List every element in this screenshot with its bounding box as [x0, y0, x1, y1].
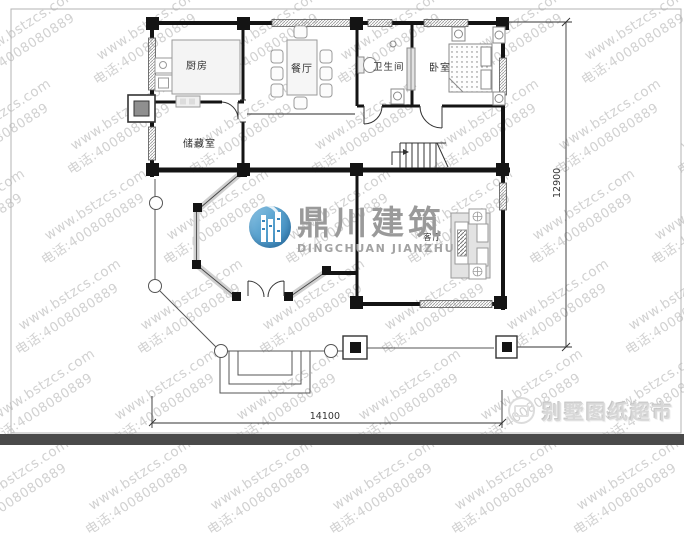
- footer-brand: 别墅图纸超市: [508, 396, 674, 425]
- flue-block: [128, 95, 155, 122]
- watermark-text: www.bstzcs.com电话:4008080889: [207, 435, 328, 532]
- room-label-dining: 餐厅: [291, 60, 313, 75]
- watermark-text: www.bstzcs.com电话:4008080889: [0, 435, 84, 532]
- footer-brand-label: 别墅图纸超市: [542, 396, 674, 425]
- room-label-bedroom: 卧室: [429, 59, 451, 74]
- room-label-bathroom: 卫生间: [373, 59, 405, 73]
- drawing-sheet: www.bstzcs.com电话:4008080889www.bstzcs.co…: [0, 0, 684, 445]
- dimension-bottom-label: 14100: [310, 411, 340, 422]
- footer-brand-icon: [508, 397, 535, 424]
- dingchuan-logo-title: 鼎川建筑: [297, 206, 455, 241]
- staircase: [392, 143, 448, 168]
- watermark-text: www.bstzcs.com电话:4008080889: [329, 435, 450, 532]
- kitchen-counter: [155, 40, 240, 107]
- dingchuan-logo-subtitle: DINGCHUAN JIANZHU: [297, 242, 455, 255]
- room-label-kitchen: 厨房: [186, 57, 208, 72]
- doors: [222, 100, 442, 297]
- bed: [449, 27, 505, 105]
- dimension-right-label: 12900: [552, 168, 563, 198]
- watermark-text: www.bstzcs.com电话:4008080889: [451, 435, 572, 532]
- dingchuan-logo-icon: [249, 206, 291, 248]
- bottom-bar: [0, 434, 684, 445]
- watermark-text: www.bstzcs.com电话:4008080889: [85, 435, 206, 532]
- dingchuan-logo: 鼎川建筑 DINGCHUAN JIANZHU: [249, 206, 455, 255]
- watermark-text: www.bstzcs.com电话:4008080889: [573, 435, 684, 532]
- sofa-set: [451, 209, 490, 279]
- room-label-storage: 储藏室: [183, 135, 216, 150]
